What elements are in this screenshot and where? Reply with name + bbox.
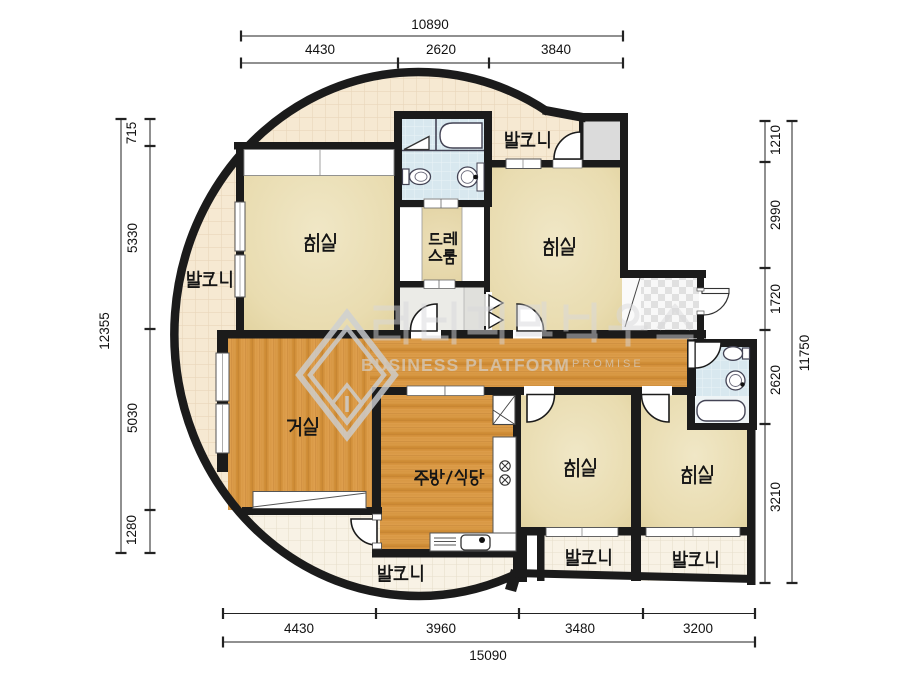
- svg-text:2990: 2990: [768, 200, 783, 230]
- svg-text:5030: 5030: [125, 403, 140, 433]
- svg-text:1720: 1720: [768, 284, 783, 314]
- svg-text:3480: 3480: [565, 621, 595, 636]
- svg-text:3210: 3210: [768, 482, 783, 512]
- svg-text:11750: 11750: [797, 335, 812, 372]
- svg-text:BUSINESS PLATFORM: BUSINESS PLATFORM: [361, 355, 570, 375]
- svg-text:10890: 10890: [411, 17, 449, 32]
- svg-text:15090: 15090: [469, 648, 507, 663]
- svg-text:3840: 3840: [541, 42, 571, 57]
- svg-text:4430: 4430: [284, 621, 314, 636]
- svg-text:PROMISE: PROMISE: [572, 358, 644, 370]
- svg-text:3960: 3960: [426, 621, 456, 636]
- svg-text:3200: 3200: [683, 621, 713, 636]
- svg-text:12355: 12355: [97, 312, 112, 350]
- svg-text:715: 715: [124, 122, 139, 145]
- svg-text:4430: 4430: [305, 42, 335, 57]
- svg-text:1210: 1210: [768, 125, 783, 155]
- svg-text:2620: 2620: [768, 365, 783, 395]
- svg-text:1280: 1280: [124, 515, 139, 545]
- svg-text:2620: 2620: [426, 42, 456, 57]
- svg-text:5330: 5330: [125, 223, 140, 253]
